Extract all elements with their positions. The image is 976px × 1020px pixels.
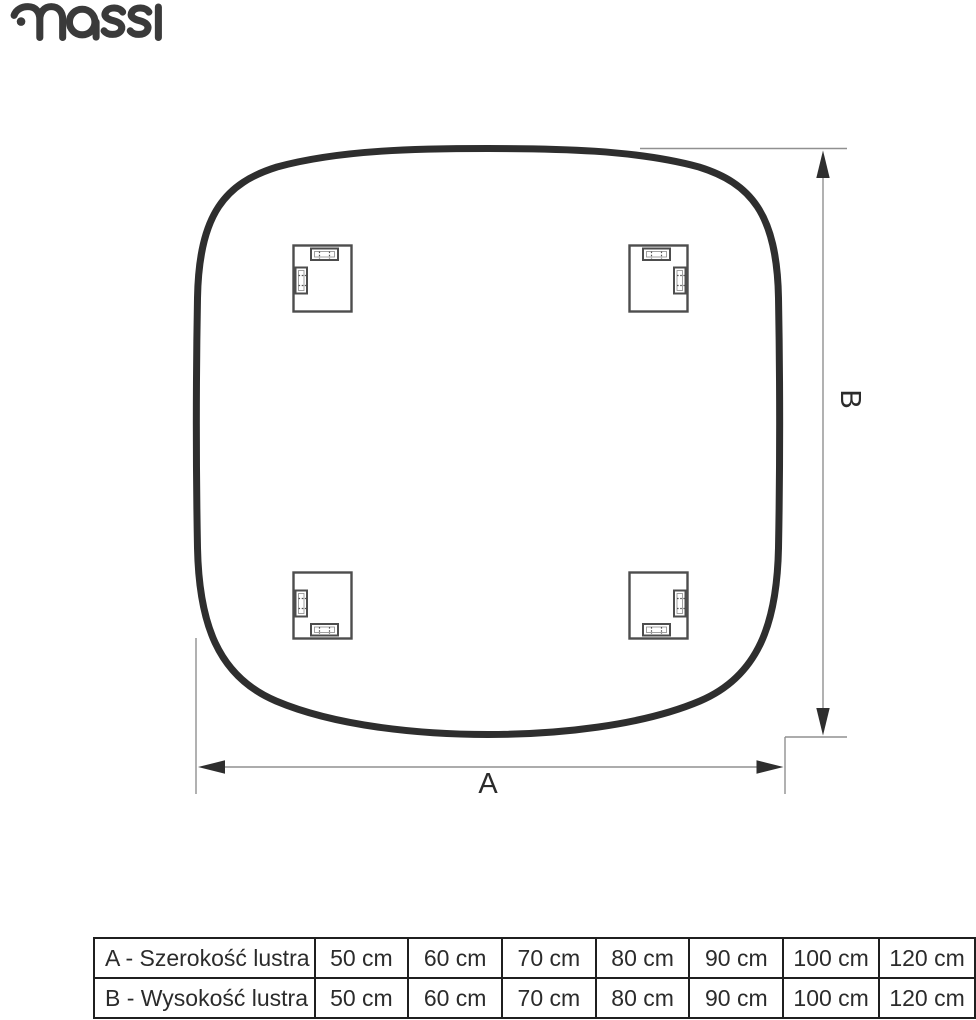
table-row-width: A - Szerokość lustra 50 cm 60 cm 70 cm 8… xyxy=(94,938,975,978)
width-value-cell: 50 cm xyxy=(315,938,409,978)
row-label-height: B - Wysokość lustra xyxy=(94,978,315,1018)
width-value-cell: 80 cm xyxy=(596,938,690,978)
mounting-bracket-top-left-icon xyxy=(294,246,352,312)
height-value-cell: 60 cm xyxy=(408,978,502,1018)
table-row-height: B - Wysokość lustra 50 cm 60 cm 70 cm 80… xyxy=(94,978,975,1018)
width-value-cell: 70 cm xyxy=(502,938,596,978)
size-table: A - Szerokość lustra 50 cm 60 cm 70 cm 8… xyxy=(93,937,976,1019)
height-value-cell: 120 cm xyxy=(879,978,975,1018)
mirror-outline xyxy=(196,149,779,735)
product-dimension-sheet: { "logo": { "brand": "massi" }, "diagram… xyxy=(0,0,976,1020)
row-label-width: A - Szerokość lustra xyxy=(94,938,315,978)
width-value-cell: 90 cm xyxy=(689,938,783,978)
dimension-b-arrow-up-icon xyxy=(816,151,829,179)
height-value-cell: 70 cm xyxy=(502,978,596,1018)
dimension-label-b: B xyxy=(834,380,864,418)
dimension-a-arrow-right-icon xyxy=(757,760,784,773)
dimension-label-a: A xyxy=(469,770,507,799)
mirror-technical-drawing xyxy=(0,0,976,840)
mounting-bracket-bottom-right-icon xyxy=(630,573,688,639)
height-value-cell: 80 cm xyxy=(596,978,690,1018)
height-value-cell: 90 cm xyxy=(689,978,783,1018)
width-value-cell: 120 cm xyxy=(879,938,975,978)
dimension-b-arrow-down-icon xyxy=(816,708,829,736)
height-value-cell: 100 cm xyxy=(783,978,879,1018)
width-value-cell: 100 cm xyxy=(783,938,879,978)
width-value-cell: 60 cm xyxy=(408,938,502,978)
height-value-cell: 50 cm xyxy=(315,978,409,1018)
mounting-bracket-top-right-icon xyxy=(630,246,688,312)
dimension-a-arrow-left-icon xyxy=(198,760,225,773)
mounting-bracket-bottom-left-icon xyxy=(294,573,352,639)
